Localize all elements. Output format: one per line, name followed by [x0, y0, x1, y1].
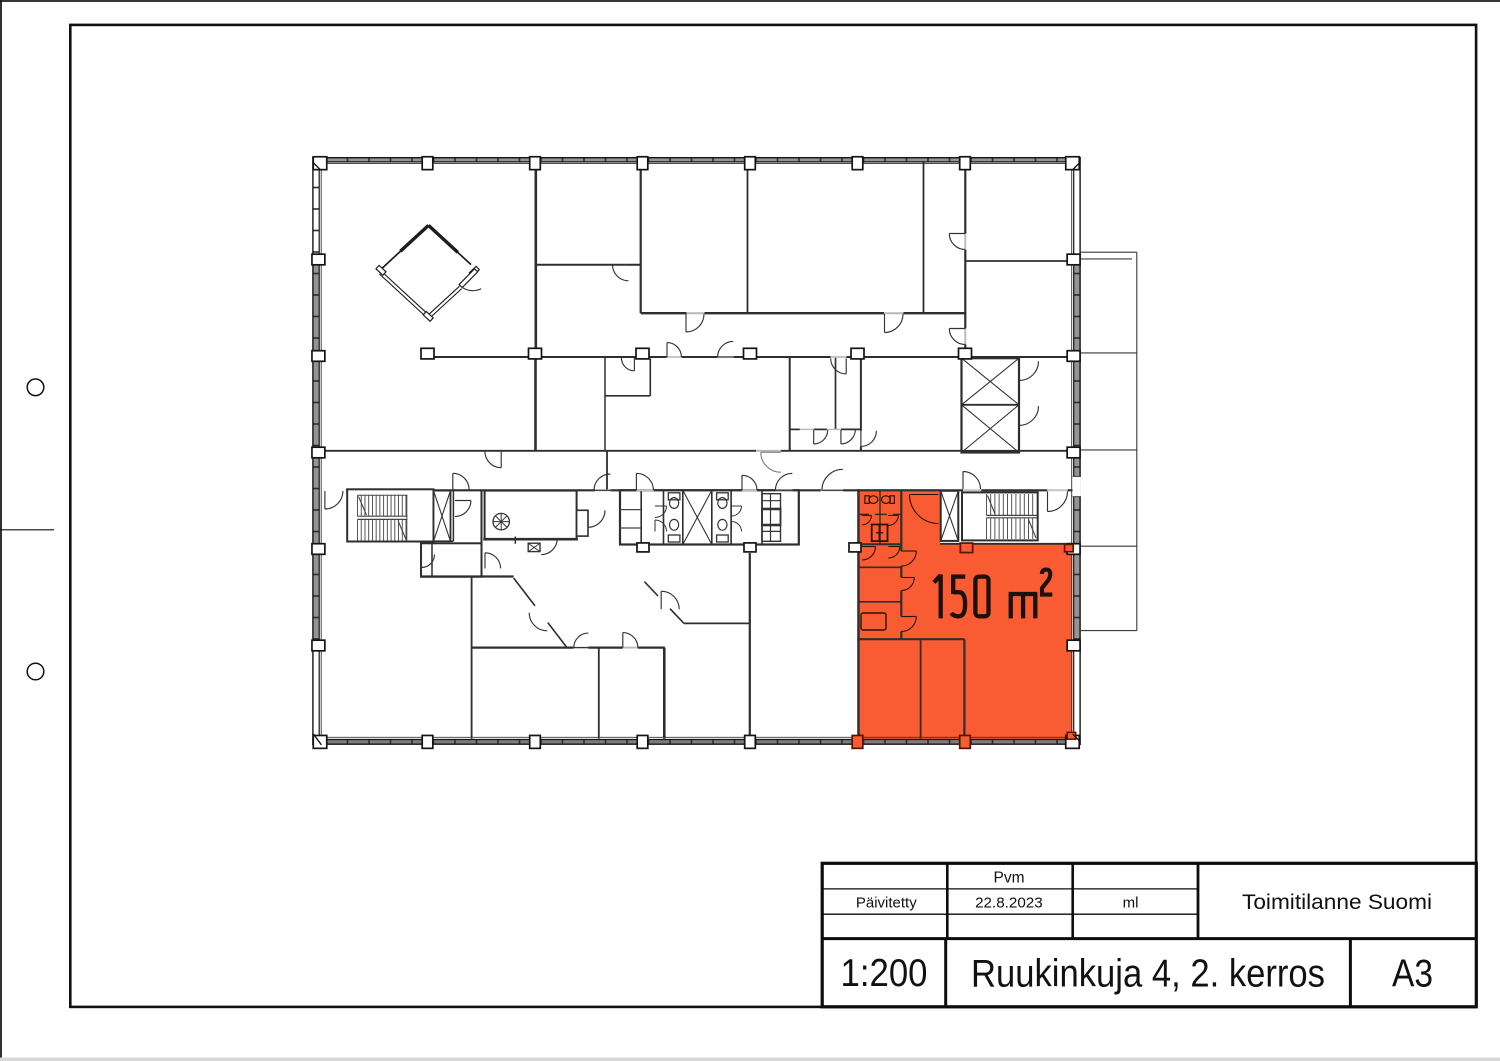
svg-text:22.8.2023: 22.8.2023	[975, 895, 1043, 912]
svg-text:1:200: 1:200	[841, 952, 928, 995]
svg-text:ml: ml	[1123, 895, 1139, 912]
svg-text:A3: A3	[1392, 953, 1433, 996]
svg-text:Toimitilanne Suomi: Toimitilanne Suomi	[1242, 889, 1432, 914]
svg-text:Ruukinkuja 4, 2. kerros: Ruukinkuja 4, 2. kerros	[971, 953, 1325, 996]
svg-text:Pvm: Pvm	[994, 870, 1025, 887]
svg-text:Päivitetty: Päivitetty	[856, 895, 917, 912]
